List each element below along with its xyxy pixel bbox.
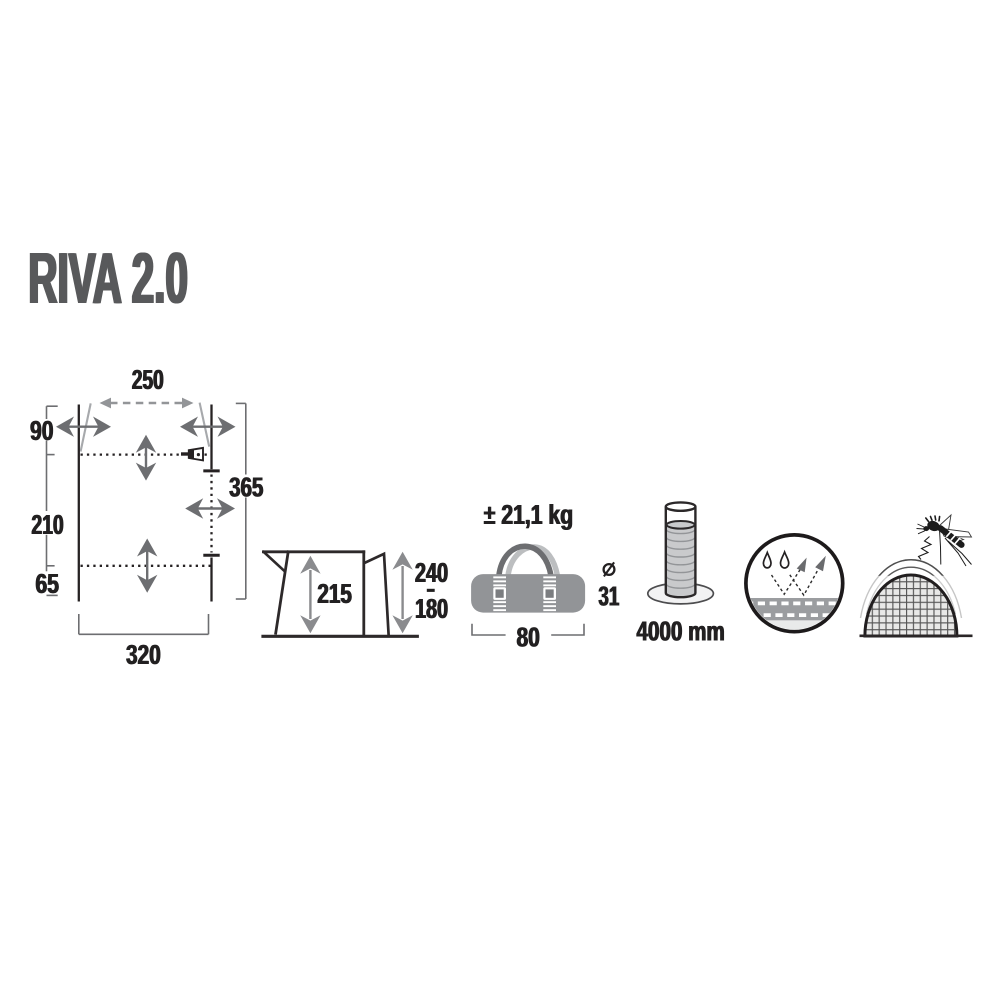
svg-text:90: 90 xyxy=(31,416,55,446)
svg-text:365: 365 xyxy=(230,472,264,503)
svg-text:250: 250 xyxy=(132,365,164,397)
svg-text:± 21,1 kg: ± 21,1 kg xyxy=(484,501,573,531)
svg-text:320: 320 xyxy=(127,640,162,671)
svg-text:240: 240 xyxy=(416,558,449,589)
svg-text:180: 180 xyxy=(416,594,449,625)
svg-text:65: 65 xyxy=(36,569,60,599)
svg-text:31: 31 xyxy=(599,581,620,613)
svg-text:80: 80 xyxy=(517,623,540,654)
svg-text:210: 210 xyxy=(32,510,64,541)
svg-text:4000 mm: 4000 mm xyxy=(637,617,725,648)
svg-text:215: 215 xyxy=(318,579,353,610)
